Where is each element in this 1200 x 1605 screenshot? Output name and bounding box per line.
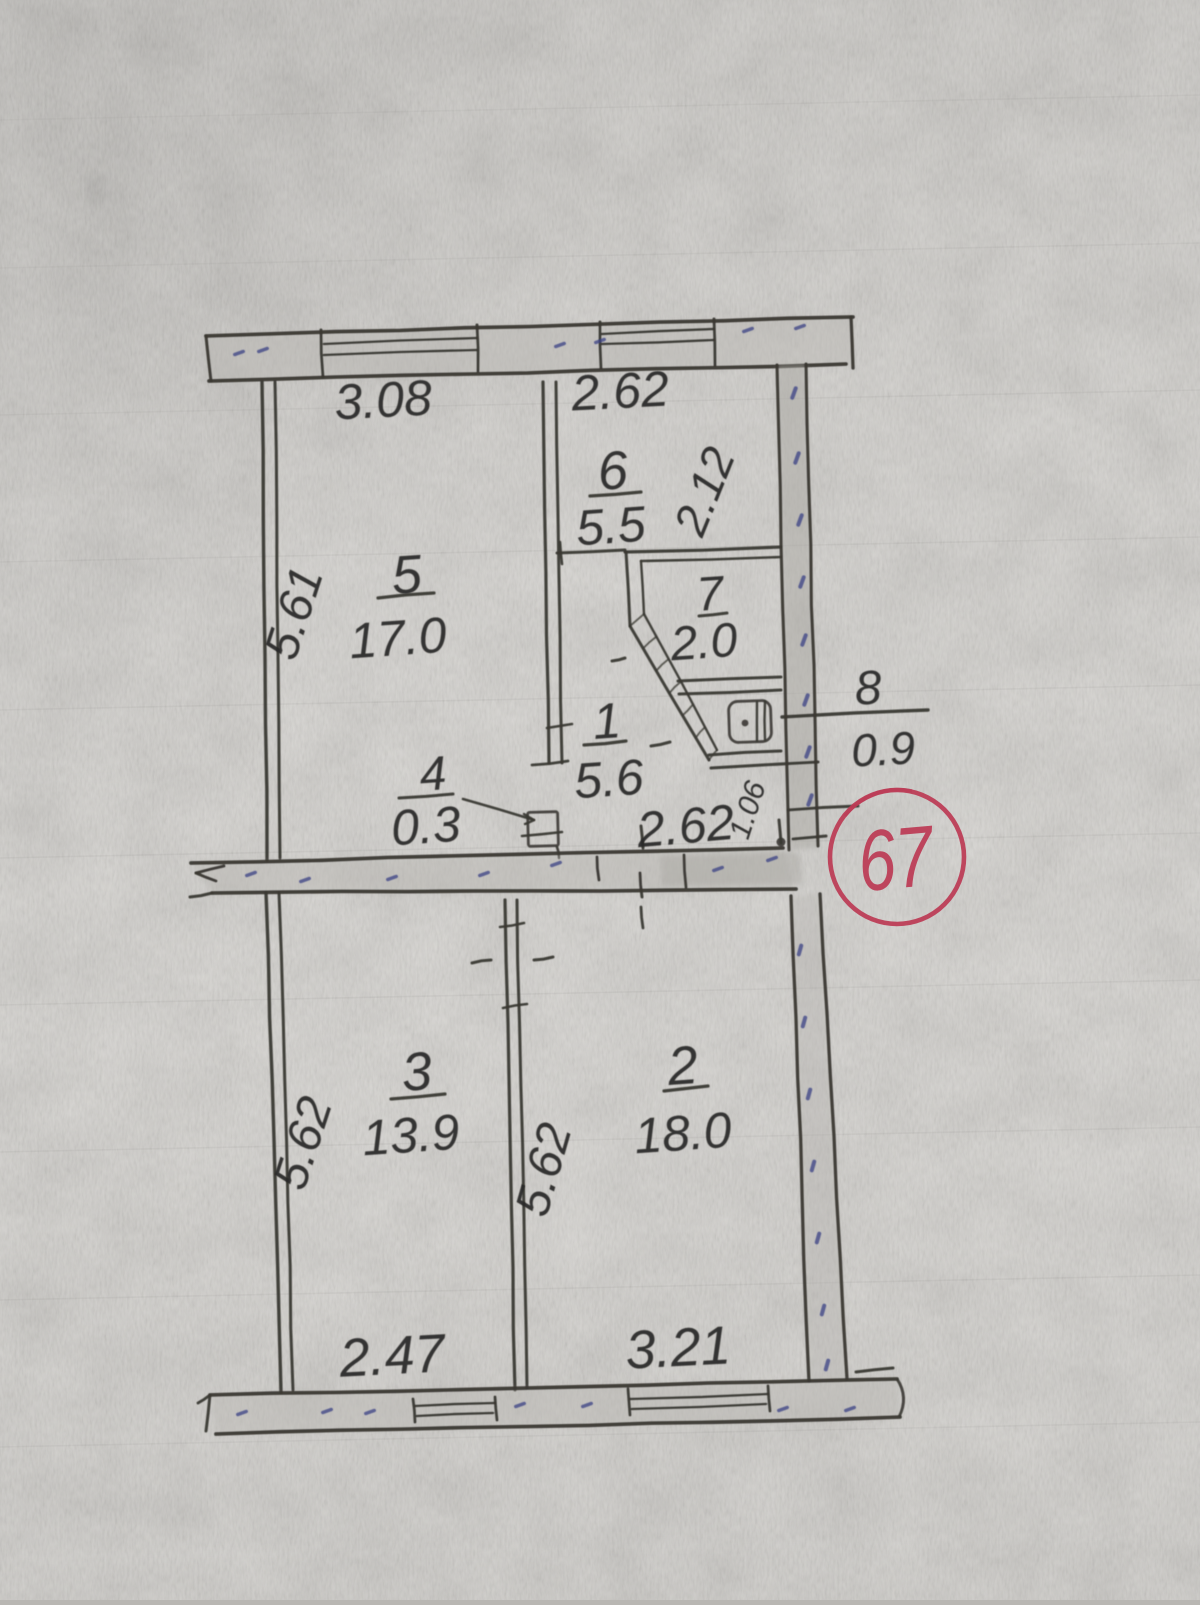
svg-text:2.62: 2.62 <box>569 361 670 422</box>
svg-text:2.47: 2.47 <box>337 1323 448 1389</box>
svg-text:5: 5 <box>390 544 425 606</box>
svg-text:18.0: 18.0 <box>632 1102 733 1165</box>
svg-text:2.62: 2.62 <box>634 794 737 858</box>
svg-text:3.08: 3.08 <box>333 370 433 431</box>
svg-text:5.6: 5.6 <box>572 749 645 810</box>
svg-text:3: 3 <box>400 1041 434 1103</box>
svg-text:13.9: 13.9 <box>360 1104 461 1167</box>
svg-text:2: 2 <box>665 1035 700 1097</box>
svg-text:8: 8 <box>853 661 883 715</box>
svg-text:6: 6 <box>596 440 631 502</box>
svg-text:0.9: 0.9 <box>850 721 917 776</box>
svg-text:17.0: 17.0 <box>347 607 448 670</box>
svg-text:0.3: 0.3 <box>389 796 462 857</box>
svg-text:67: 67 <box>854 808 939 910</box>
svg-text:2.0: 2.0 <box>668 614 740 672</box>
svg-text:5.5: 5.5 <box>574 496 647 557</box>
svg-text:4: 4 <box>418 747 448 802</box>
svg-text:1: 1 <box>591 692 623 750</box>
svg-text:3.21: 3.21 <box>624 1315 732 1380</box>
